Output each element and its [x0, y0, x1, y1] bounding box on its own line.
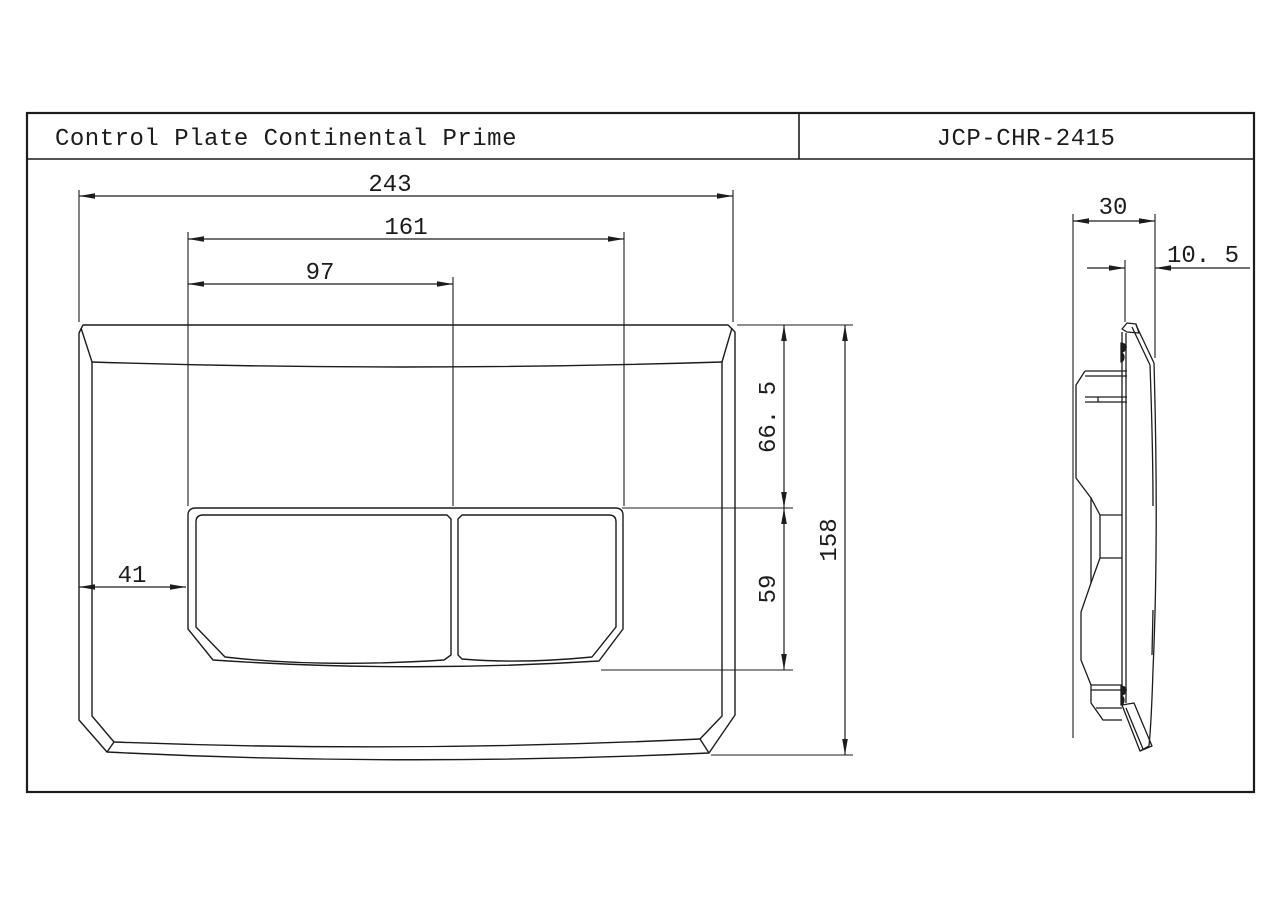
bracket-notch [1100, 515, 1122, 558]
dimension-lines [79, 196, 1250, 755]
dim-label-overall-height: 158 [817, 518, 844, 561]
extension-lines [79, 190, 1155, 755]
left-flush-button [196, 515, 451, 663]
plate-inner-right [700, 362, 722, 739]
side-view [1076, 323, 1156, 751]
bracket-notch-link-bottom [1091, 558, 1100, 583]
plate-outer-outline [79, 325, 735, 760]
part-number: JCP-CHR-2415 [937, 126, 1116, 153]
dim-label-plate-protrusion: 10. 5 [1167, 243, 1239, 270]
bracket-outline [1076, 371, 1122, 720]
border-rect [27, 113, 1254, 792]
plate-bevel-bottomleft [107, 742, 114, 752]
product-name: Control Plate Continental Prime [55, 126, 517, 153]
dim-label-depth: 30 [1099, 195, 1128, 222]
sideplate-front-edge-inner [1150, 365, 1153, 506]
sideplate-top-chamfer-inner [1132, 327, 1150, 365]
sideplate-bottom-chamfer-inner [1126, 708, 1143, 749]
drawing-canvas: Control Plate Continental Prime JCP-CHR-… [0, 0, 1280, 905]
front-view [79, 325, 735, 760]
dim-label-button-span-width: 161 [384, 215, 427, 242]
dim-label-overall-width: 243 [368, 172, 411, 199]
plate-inner-bottom [114, 739, 700, 747]
plate-bevel-topleft [81, 328, 92, 362]
engineering-drawing-page: Control Plate Continental Prime JCP-CHR-… [0, 0, 1280, 905]
drawing-frame [27, 113, 1254, 792]
dim-label-top-to-buttons-height: 66. 5 [756, 381, 783, 453]
plate-inner-top [92, 362, 722, 367]
dim-label-buttons-height: 59 [756, 575, 783, 604]
sideplate-front-edge-inner-low [1152, 610, 1153, 655]
dim-label-left-button-width: 97 [306, 260, 335, 287]
plate-bevel-bottomright [700, 739, 709, 753]
button-recess-outline [188, 508, 623, 667]
plate-bevel-topright [722, 328, 732, 362]
sideplate-top-chamfer-outer [1136, 325, 1154, 363]
plate-inner-left [92, 362, 114, 742]
dimension-labels: 243 161 97 41 66. 5 59 158 30 10. 5 [118, 172, 1239, 603]
dim-label-left-edge-to-buttons: 41 [118, 563, 147, 590]
right-flush-button [458, 515, 616, 661]
sideplate-front-edge [1149, 363, 1156, 746]
sideplate-top-cap [1122, 323, 1139, 333]
bracket-notch-link-top [1091, 498, 1100, 515]
